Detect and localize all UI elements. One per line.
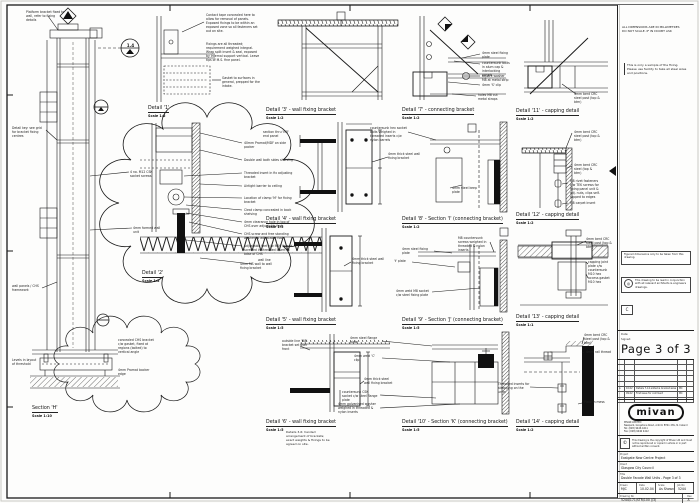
detail-title: Detail '11' - capping detailScale 1:2	[516, 109, 579, 121]
annotation: countersunk CSK socket c/w steel flange …	[342, 390, 378, 402]
annotation: 't' plate	[394, 259, 412, 263]
project-value: Eastgate New Centre Project	[621, 456, 694, 460]
annotation: section thru 'M8' end panel	[263, 130, 293, 138]
detail-title-text: Section 'H'	[32, 406, 58, 413]
annotation: outside line 'M8' bracket set over front	[282, 339, 314, 351]
annotation: Cleat clamp concealed in back shelving	[244, 208, 294, 216]
detail-title: Detail '8' - Section 'I' (connecting bra…	[402, 217, 503, 229]
revision-cell-chk	[687, 376, 694, 380]
date-value: 10.02.04	[640, 487, 655, 491]
annotation: 40mm Promat/MDF on side packer	[244, 141, 294, 149]
annotation: access gasket M10 hex	[588, 276, 614, 284]
detail-title-text: Detail '14' - capping detail	[516, 420, 579, 427]
annotation: Details 3-6: handed arrangement of brack…	[286, 431, 332, 447]
annotation: 4mm bent CRC steel post (top & btm)	[574, 130, 600, 142]
revision-cell-chk	[687, 371, 694, 375]
detail-title-text: Detail '11' - capping detail	[516, 109, 579, 116]
revision-cell-desc	[635, 371, 678, 375]
client-row: Client Glasgow City Council	[618, 461, 694, 471]
annotation: holes M8 cut metal straps	[478, 93, 506, 101]
annotation: Adjustable feet c/w M16 thread screwed i…	[244, 244, 294, 256]
detail-scale-text: Scale 1:5	[266, 428, 336, 432]
revision-cell-chk	[687, 382, 694, 386]
annotation: Platform bracket fixed to wall, refer to…	[26, 10, 66, 22]
revision-cell-chk	[687, 365, 694, 369]
sample-note: This is only a sample of the fixing. Ple…	[624, 63, 689, 75]
detail-scale-text: Scale 1:5	[402, 326, 503, 330]
annotation: M8 carpet insert	[570, 201, 596, 205]
detail-scale-text: Scale 1:2	[402, 225, 503, 229]
annotation: 4mm weld M8 socket c/w steel fixing plat…	[396, 289, 430, 297]
page-block: Date: Signed: Page 3 of 3	[618, 330, 694, 359]
annotation: 4mm weld 'C' clip	[354, 354, 380, 362]
detail-title-text: Detail '6' - wall fixing bracket	[266, 420, 336, 427]
detail-title-text: Detail '2'	[142, 271, 163, 278]
copyright-box: © This drawing is the copyright of Mivan…	[618, 435, 694, 451]
copyright-text: This drawing is the copyright of Mivan L…	[632, 439, 694, 448]
detail-title-text: Detail '5' - wall fixing bracket	[266, 318, 336, 325]
drawing-number-row: Drawing No 5244/171/STR/100 (/3) Rev A	[618, 493, 694, 503]
detail-scale-text: Scale 1:1	[516, 323, 579, 327]
detail-title: Detail '12' - capping detailScale 1:2	[516, 213, 579, 225]
revision-cell-chk	[687, 387, 694, 391]
annotation: 4mm Promat backer edge	[118, 368, 154, 376]
annotation: countersunk hex socket bolts weighed in …	[370, 126, 408, 142]
scale-value: As Shown	[659, 487, 674, 491]
annotation: Double wall both sides shelving	[244, 158, 294, 162]
mivan-logo: mivan	[628, 404, 683, 421]
detail-title: Detail '9' - Section 'J' (connecting bra…	[402, 318, 503, 330]
title-block-panel: ALL DIMENSIONS ARE IN MILLIMETRES DO NOT…	[617, 5, 694, 498]
detail-scale-text: Scale 1:10	[32, 414, 58, 418]
annotation: Plate in mess	[584, 400, 610, 404]
detail-title: Detail '7' - connecting bracketScale 1:2	[402, 108, 474, 120]
detail-title-text: Detail '10' - Section 'K' (connecting br…	[402, 420, 508, 427]
detail-scale-text: Scale 1:2	[516, 117, 579, 121]
detail-title: Detail '3' - wall fixing bracketScale 1:…	[266, 108, 336, 120]
revision-cell-desc	[635, 382, 678, 386]
drawing-number-value: 5244/171/STR/100 (/3)	[621, 498, 682, 502]
drawing-title-row: Title Double Facade Wall Units - Page 3 …	[618, 471, 694, 482]
detail-title-text: Detail '12' - capping detail	[516, 213, 579, 220]
annotation: Detail key: see grid for bracket fixing …	[12, 126, 46, 138]
drawing-title-value: Double Facade Wall Units - Page 3 of 3	[621, 476, 694, 480]
annotation: 4mm steel fixing plate	[402, 247, 430, 255]
annotation: 4mm bent CRC steel post (top & btm)	[574, 92, 600, 104]
copyright-icon: ©	[620, 438, 630, 449]
fields-row: Drawn MJC Date 10.02.04 Scale As Shown J…	[618, 482, 694, 493]
revision-cell-rev	[618, 382, 625, 386]
revision-cell-rev	[618, 376, 625, 380]
status-letter-box: C	[621, 305, 633, 315]
annotation: CHS screw and free standing washer to ad…	[244, 232, 294, 240]
annotation: 4mm thick steel wall fixing bracket	[352, 257, 386, 265]
detail-title: Detail '5' - wall fixing bracketScale 1:…	[266, 318, 336, 330]
detail-scale-text: Scale 1:5	[402, 428, 508, 432]
revision-cell-chk	[687, 392, 694, 396]
client-value: Glasgow City Council	[621, 466, 694, 470]
detail-scale-text: Scale 1:5	[266, 326, 336, 330]
revision-cell-by	[678, 382, 687, 386]
annotation: Fixings are all threaded; requirement we…	[206, 42, 260, 62]
drawn-value: MJC	[621, 487, 636, 491]
drawing-sheet: Platform bracket fixed to wall, refer to…	[0, 0, 700, 503]
revision-cell-desc: Details 7-14 added & bracket sizes revis…	[635, 387, 678, 391]
detail-title: Detail '4' - wall fixing bracketScale 1:…	[266, 217, 336, 229]
detail-title-text: Detail '3' - wall fixing bracket	[266, 108, 336, 115]
annotation: 4mm steel fixing plate	[482, 51, 510, 59]
revision-cell-date	[625, 371, 635, 375]
revision-cell-rev: -	[618, 392, 625, 396]
annotation: Threaded insert in fix adjusting bracket	[244, 171, 294, 179]
revision-cell-rev	[618, 371, 625, 375]
revision-cell-date	[625, 382, 635, 386]
dimensions-note-line2: DO NOT SCALE. IF IN DOUBT ASK	[622, 29, 690, 33]
revision-table: A10.02Details 7-14 added & bracket sizes…	[618, 359, 694, 399]
revision-cell-by	[678, 365, 687, 369]
detail-title-text: Detail '9' - Section 'J' (connecting bra…	[402, 318, 503, 325]
annotation: wall panels / CHS framework	[12, 284, 42, 292]
drawing-linework	[0, 0, 700, 503]
revision-cell-by	[678, 376, 687, 380]
annotation: M8 countersunk screws weighed in threade…	[458, 236, 490, 252]
annotation: Contact tape concealed here to allow for…	[206, 13, 260, 33]
revision-cell-date	[625, 376, 635, 380]
detail-scale-text: Scale 1:5	[266, 225, 336, 229]
revision-cell-date: 10.02	[625, 387, 635, 391]
annotation: 4mm 'S' clip	[482, 83, 508, 87]
detail-title-text: Detail '1'	[148, 106, 169, 113]
revision-cell-by	[678, 360, 687, 364]
revision-cell-rev	[618, 365, 625, 369]
signed-label: Signed:	[621, 337, 694, 341]
detail-title: Detail '13' - capping detailScale 1:1	[516, 315, 579, 327]
annotation: 4mm steel flange plate	[350, 336, 380, 344]
detail-scale-text: Scale 1:2	[516, 221, 579, 225]
annotation: 4mm MS wall to wall fixing bracket	[240, 262, 280, 270]
annotation: M8 rivet fasteners c/w TEK screws for fi…	[570, 179, 600, 199]
detail-scale-text: Scale 1:2	[516, 428, 579, 432]
annotation: 4mm formed wall unit	[133, 226, 163, 234]
revision-cell-by	[678, 371, 687, 375]
annotation: 4mm galvanised washer weighed in threade…	[338, 402, 378, 414]
annotation: concealed CHS bracket c/w gasket, fixed …	[118, 338, 156, 354]
detail-title: Detail '14' - capping detailScale 1:2	[516, 420, 579, 432]
company-logo-box: mivan MIVAN LIMITED Newpark, Greystone R…	[618, 399, 694, 435]
drawing-symbol-icon: ◎	[624, 279, 633, 288]
revision-cell-by: MC	[678, 387, 687, 391]
annotation: 4mm steel keep plate	[452, 186, 480, 194]
annotation: square washer M8 at metal strip	[482, 74, 510, 82]
annotation: Location of clamp 'M' for fixing bracket	[244, 196, 294, 204]
annotation: 4mm bent CRC steel post (top & btm)	[586, 237, 612, 249]
annotation: Threaded inserts for strapping on the un…	[498, 382, 530, 394]
detail-scale-text: Scale 1:2	[266, 116, 336, 120]
read-in-conjunction-note: ◎ This drawing to be read in conjunction…	[621, 277, 691, 293]
annotation: wall line	[258, 258, 272, 262]
annotation: Gasket to surfaces in general, prepped f…	[222, 76, 264, 88]
project-row: Project Eastgate New Centre Project	[618, 451, 694, 461]
revision-cell-rev	[618, 360, 625, 364]
detail-title: Detail '1'Scale 1:2	[148, 106, 169, 118]
revision-value: A	[683, 498, 694, 502]
dimensions-note: ALL DIMENSIONS ARE IN MILLIMETRES DO NOT…	[622, 25, 690, 33]
figured-dimensions-note: Figured dimensions only to be taken from…	[621, 251, 691, 265]
revision-cell-date	[625, 360, 635, 364]
revision-cell-desc	[635, 376, 678, 380]
detail-title-text: Detail '13' - capping detail	[516, 315, 579, 322]
revision-cell-desc	[635, 365, 678, 369]
annotation: 4mm bent CRC steel post (top & btm)	[584, 333, 610, 345]
revision-cell-desc: First issue for comment	[635, 392, 678, 396]
annotation: 4mm thick steel wall fixing bracket	[364, 377, 394, 385]
page-number: Page 3 of 3	[618, 342, 694, 356]
revision-cell-by: MC	[678, 392, 687, 396]
detail-title-text: Detail '4' - wall fixing bracket	[266, 217, 336, 224]
detail-title-text: Detail '7' - connecting bracket	[402, 108, 474, 115]
annotation: Airtight barrier to ceiling	[244, 184, 294, 188]
revision-cell-date	[625, 365, 635, 369]
detail-title: Detail '6' - wall fixing bracketScale 1:…	[266, 420, 336, 432]
job-value: 5244	[678, 487, 693, 491]
annotation: 4 no. M12 CSK socket screws	[130, 170, 160, 178]
revision-cell-chk	[687, 360, 694, 364]
detail-title: Section 'H'Scale 1:10	[32, 406, 58, 418]
annotation: 1.4	[124, 43, 137, 48]
detail-scale-text: Scale 1:2	[148, 114, 169, 118]
annotation: capping joint plate c/w countersunk M10 …	[588, 260, 614, 276]
detail-title: Detail '2'Scale 1:2	[142, 271, 163, 283]
company-fax: Fax: (028) 9446 4412	[624, 430, 694, 433]
annotation: 4mm rail thread	[586, 350, 612, 354]
revision-cell-date: 09.02	[625, 392, 635, 396]
revision-cell-rev: A	[618, 387, 625, 391]
detail-title-text: Detail '8' - Section 'I' (connecting bra…	[402, 217, 503, 224]
annotation: 4mm bent CRC steel (top & btm)	[574, 163, 600, 175]
annotation: Levels in layout of threshold	[12, 358, 38, 366]
annotation: 4mm thick steel wall fixing bracket	[388, 152, 422, 160]
detail-title: Detail '10' - Section 'K' (connecting br…	[402, 420, 508, 432]
revision-cell-desc	[635, 360, 678, 364]
detail-scale-text: Scale 1:2	[142, 279, 163, 283]
read-note-text: This drawing to be read in conjunction w…	[635, 279, 686, 289]
date-label: Date:	[621, 332, 694, 336]
detail-scale-text: Scale 1:2	[402, 116, 474, 120]
